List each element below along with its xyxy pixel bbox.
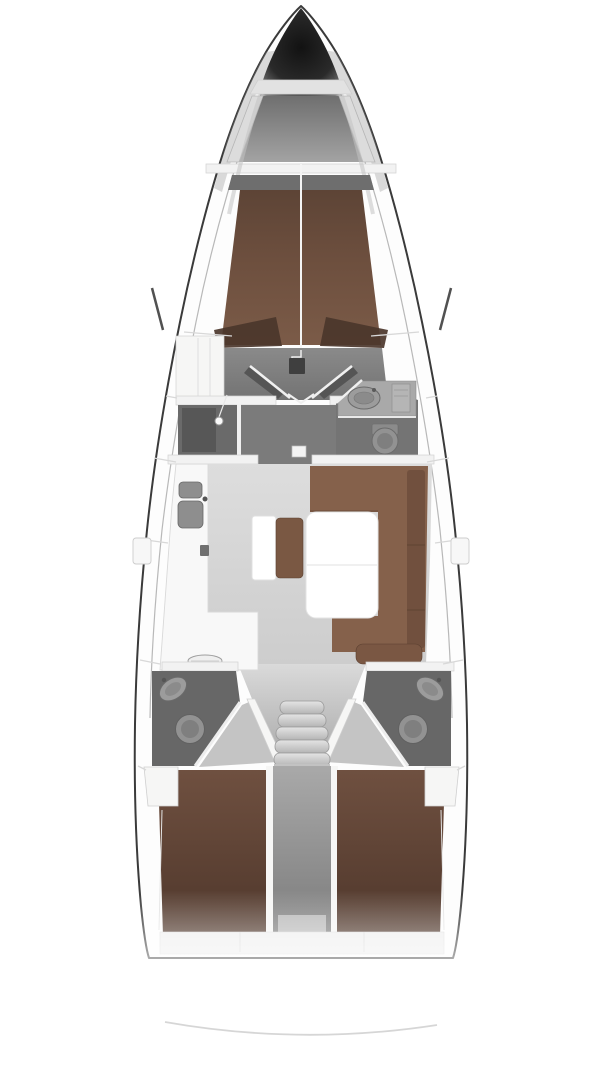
companionway-steps: [274, 701, 330, 766]
galley-fitting: [200, 545, 209, 556]
galley-sink-small: [179, 482, 202, 498]
shower-partition: [237, 404, 241, 457]
lobby-floor: [241, 405, 336, 456]
yacht-floorplan-diagram: [0, 0, 608, 1080]
aft-wall-starboard: [366, 662, 454, 671]
chainplate-mark-port: [152, 288, 163, 330]
chart-table: [252, 516, 276, 580]
chainplate-mark-starboard: [440, 288, 451, 330]
yacht-floorplan-canvas: [0, 0, 608, 1080]
forward-step-block: [289, 358, 305, 374]
aft-ledge-port: [144, 767, 178, 806]
aft-toilet-bowl: [181, 720, 199, 738]
forward-head: [336, 380, 418, 456]
stern-whiteout: [80, 1000, 528, 1080]
chart-table-bench: [276, 518, 303, 578]
aft-wall-port: [162, 662, 238, 671]
wardrobe-body: [176, 336, 224, 397]
anchor-locker-bulkhead: [250, 80, 352, 94]
aft-ledge-starboard: [425, 767, 459, 806]
step-3: [276, 727, 328, 740]
shower-wet-area: [182, 408, 216, 452]
step-1: [280, 701, 324, 714]
step-4: [275, 740, 329, 753]
forward-wardrobe: [176, 336, 224, 397]
forward-head-sink-basin: [354, 392, 374, 404]
settee-back-cushions: [407, 470, 425, 648]
galley-sink-large: [178, 501, 203, 528]
shower-head: [215, 417, 223, 425]
galley-faucet: [203, 497, 208, 502]
deck-locker-port: [133, 538, 151, 564]
settee-end-cushion: [356, 644, 422, 664]
step-2: [278, 714, 326, 727]
saloon-bulkhead-port: [168, 455, 258, 464]
saloon-bulkhead-starboard: [312, 455, 434, 464]
forward-toilet-bowl: [377, 433, 393, 449]
forward-head-cabinet: [392, 384, 410, 412]
lobby-door-stop: [292, 446, 306, 457]
deck-locker-starboard: [451, 538, 469, 564]
chart-table-area: [252, 516, 303, 580]
forward-head-faucet: [372, 388, 376, 392]
aft-head-faucet: [162, 678, 166, 682]
